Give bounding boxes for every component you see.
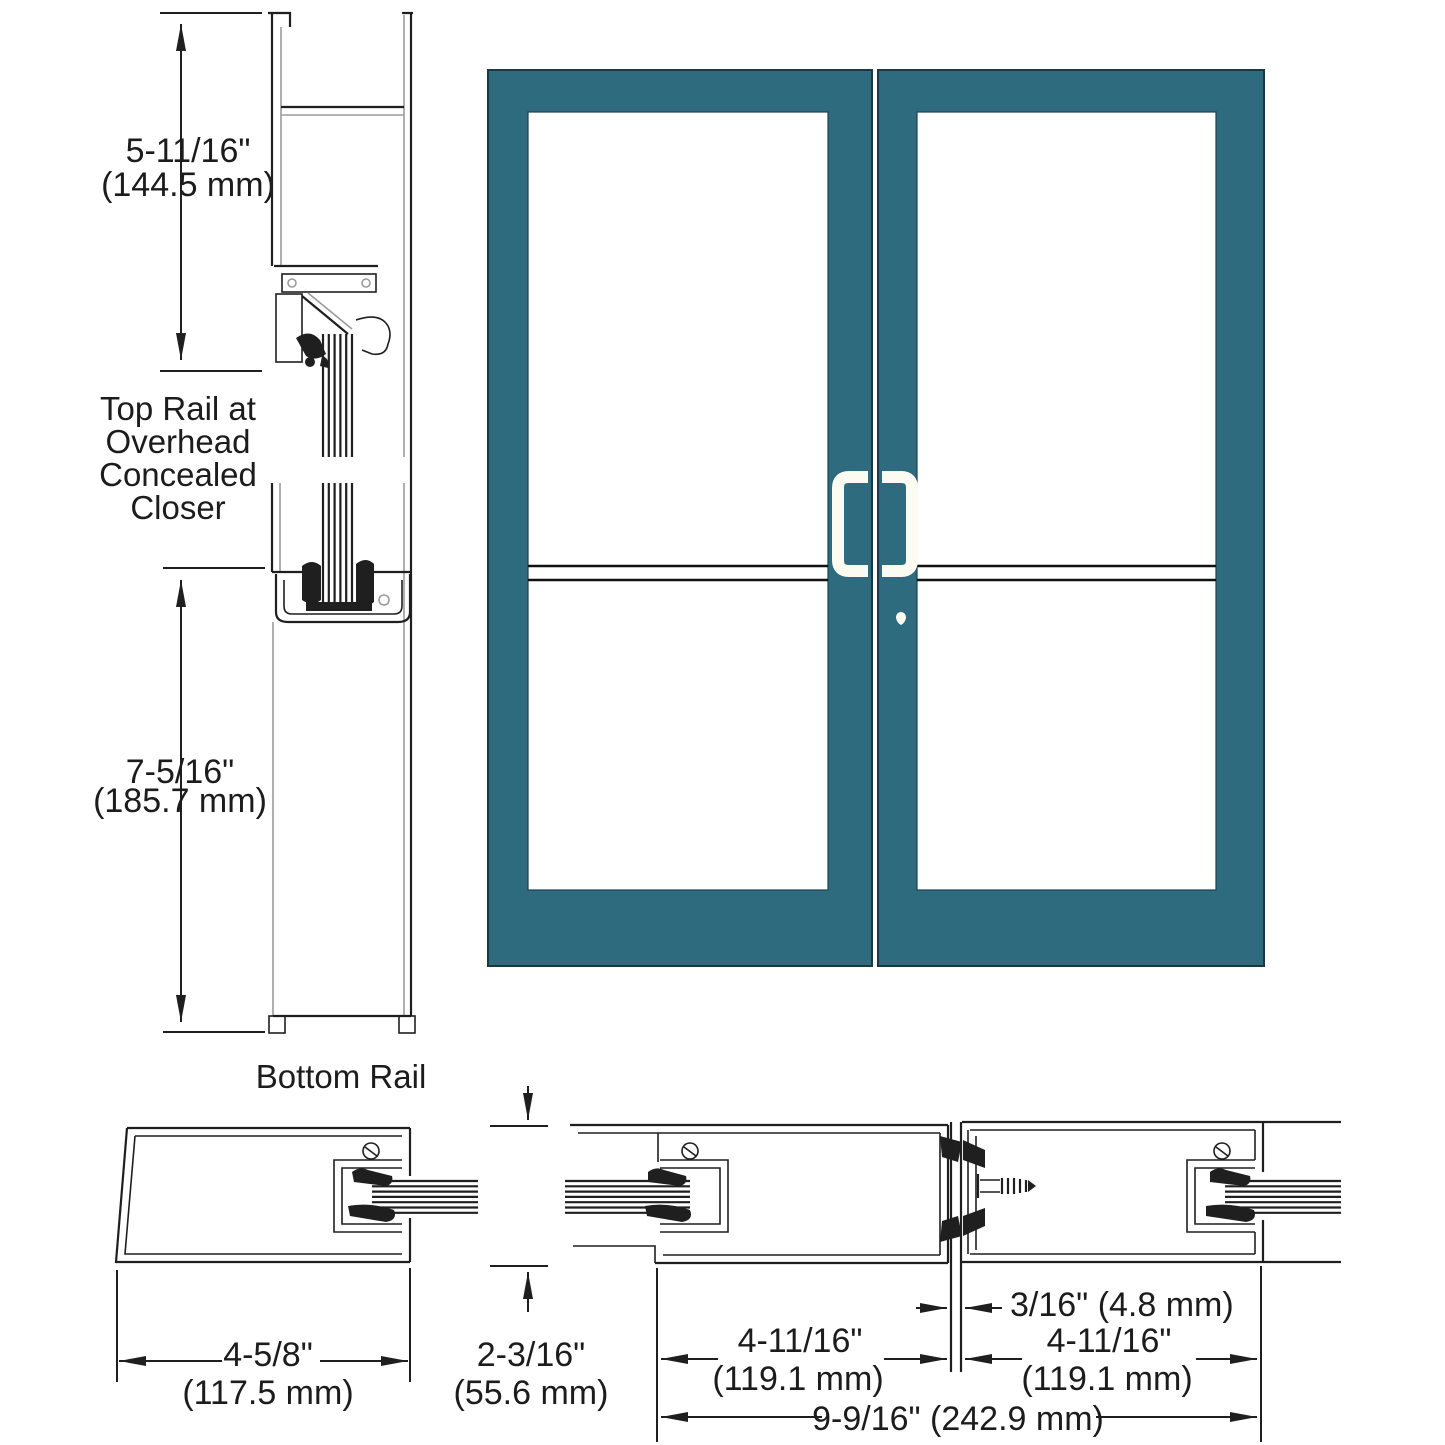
top-rail-label: Top Rail at Overhead Concealed Closer <box>99 390 257 526</box>
right-door-glass <box>917 112 1216 890</box>
hinge-stile-dim-inches: 4-5/8" <box>223 1336 313 1374</box>
glass-section-lower <box>323 483 352 606</box>
right-door-leaf <box>878 70 1264 966</box>
right-lock-stile-section <box>962 1122 1341 1262</box>
screw-fastener <box>978 1174 1036 1198</box>
top-rail-label-line1: Top Rail at <box>100 390 256 427</box>
top-rail-label-line3: Concealed <box>99 456 257 493</box>
top-rail-profile <box>268 13 413 457</box>
overall-dim-text: 9-9/16" (242.9 mm) <box>812 1400 1104 1438</box>
bottom-rail-height-dimension: 7-5/16" (185.7 mm) <box>93 568 267 1032</box>
door-thickness-dimension: 2-3/16" (55.6 mm) <box>454 1086 609 1412</box>
left-lock-stile-dim-inches: 4-11/16" <box>738 1322 863 1360</box>
right-lock-stile-dim-inches: 4-11/16" <box>1047 1322 1172 1360</box>
left-door-glass <box>528 112 828 890</box>
horizontal-stile-sections: 4-5/8" (117.5 mm) 2-3/16" (55.6 mm) <box>116 1086 1341 1442</box>
glass-section-upper <box>323 334 352 457</box>
technical-drawing-page: 5-11/16" (144.5 mm) Top Rail at Overhead… <box>0 0 1445 1445</box>
left-lock-stile-dim-mm: (119.1 mm) <box>712 1360 883 1398</box>
top-rail-height-dimension: 5-11/16" (144.5 mm) <box>101 13 275 371</box>
door-spec-drawing: 5-11/16" (144.5 mm) Top Rail at Overhead… <box>0 0 1445 1445</box>
glass-left-lock-side <box>565 1181 690 1213</box>
hinge-stile-width-dimension: 4-5/8" (117.5 mm) <box>117 1268 410 1412</box>
hinge-stile-dim-mm: (117.5 mm) <box>182 1374 353 1412</box>
glass-hinge-side <box>372 1181 478 1213</box>
hinge-stile-section: 4-5/8" (117.5 mm) <box>116 1128 478 1412</box>
right-lock-stile-dim-mm: (119.1 mm) <box>1021 1360 1192 1398</box>
bottom-rail-dim-mm: (185.7 mm) <box>93 782 267 820</box>
top-rail-label-line2: Overhead <box>106 423 251 460</box>
gap-dimension: 3/16" (4.8 mm) <box>916 1286 1234 1324</box>
left-lock-stile-section <box>565 1125 962 1263</box>
glass-right-lock-side <box>1225 1181 1341 1213</box>
top-rail-label-line4: Closer <box>130 489 225 526</box>
bottom-rail-profile <box>269 457 415 1033</box>
top-rail-dim-mm: (144.5 mm) <box>101 166 275 204</box>
left-door-leaf <box>488 70 872 966</box>
gap-dim-text: 3/16" (4.8 mm) <box>1010 1286 1234 1324</box>
top-rail-dim-inches: 5-11/16" <box>126 132 251 170</box>
thickness-dim-mm: (55.6 mm) <box>454 1374 609 1412</box>
thickness-dim-inches: 2-3/16" <box>477 1336 585 1374</box>
door-pair-elevation <box>488 70 1264 966</box>
vertical-rail-section-view: 5-11/16" (144.5 mm) Top Rail at Overhead… <box>93 13 426 1095</box>
overall-pair-dimension: 9-9/16" (242.9 mm) <box>661 1400 1257 1438</box>
bottom-rail-label: Bottom Rail <box>256 1058 427 1095</box>
